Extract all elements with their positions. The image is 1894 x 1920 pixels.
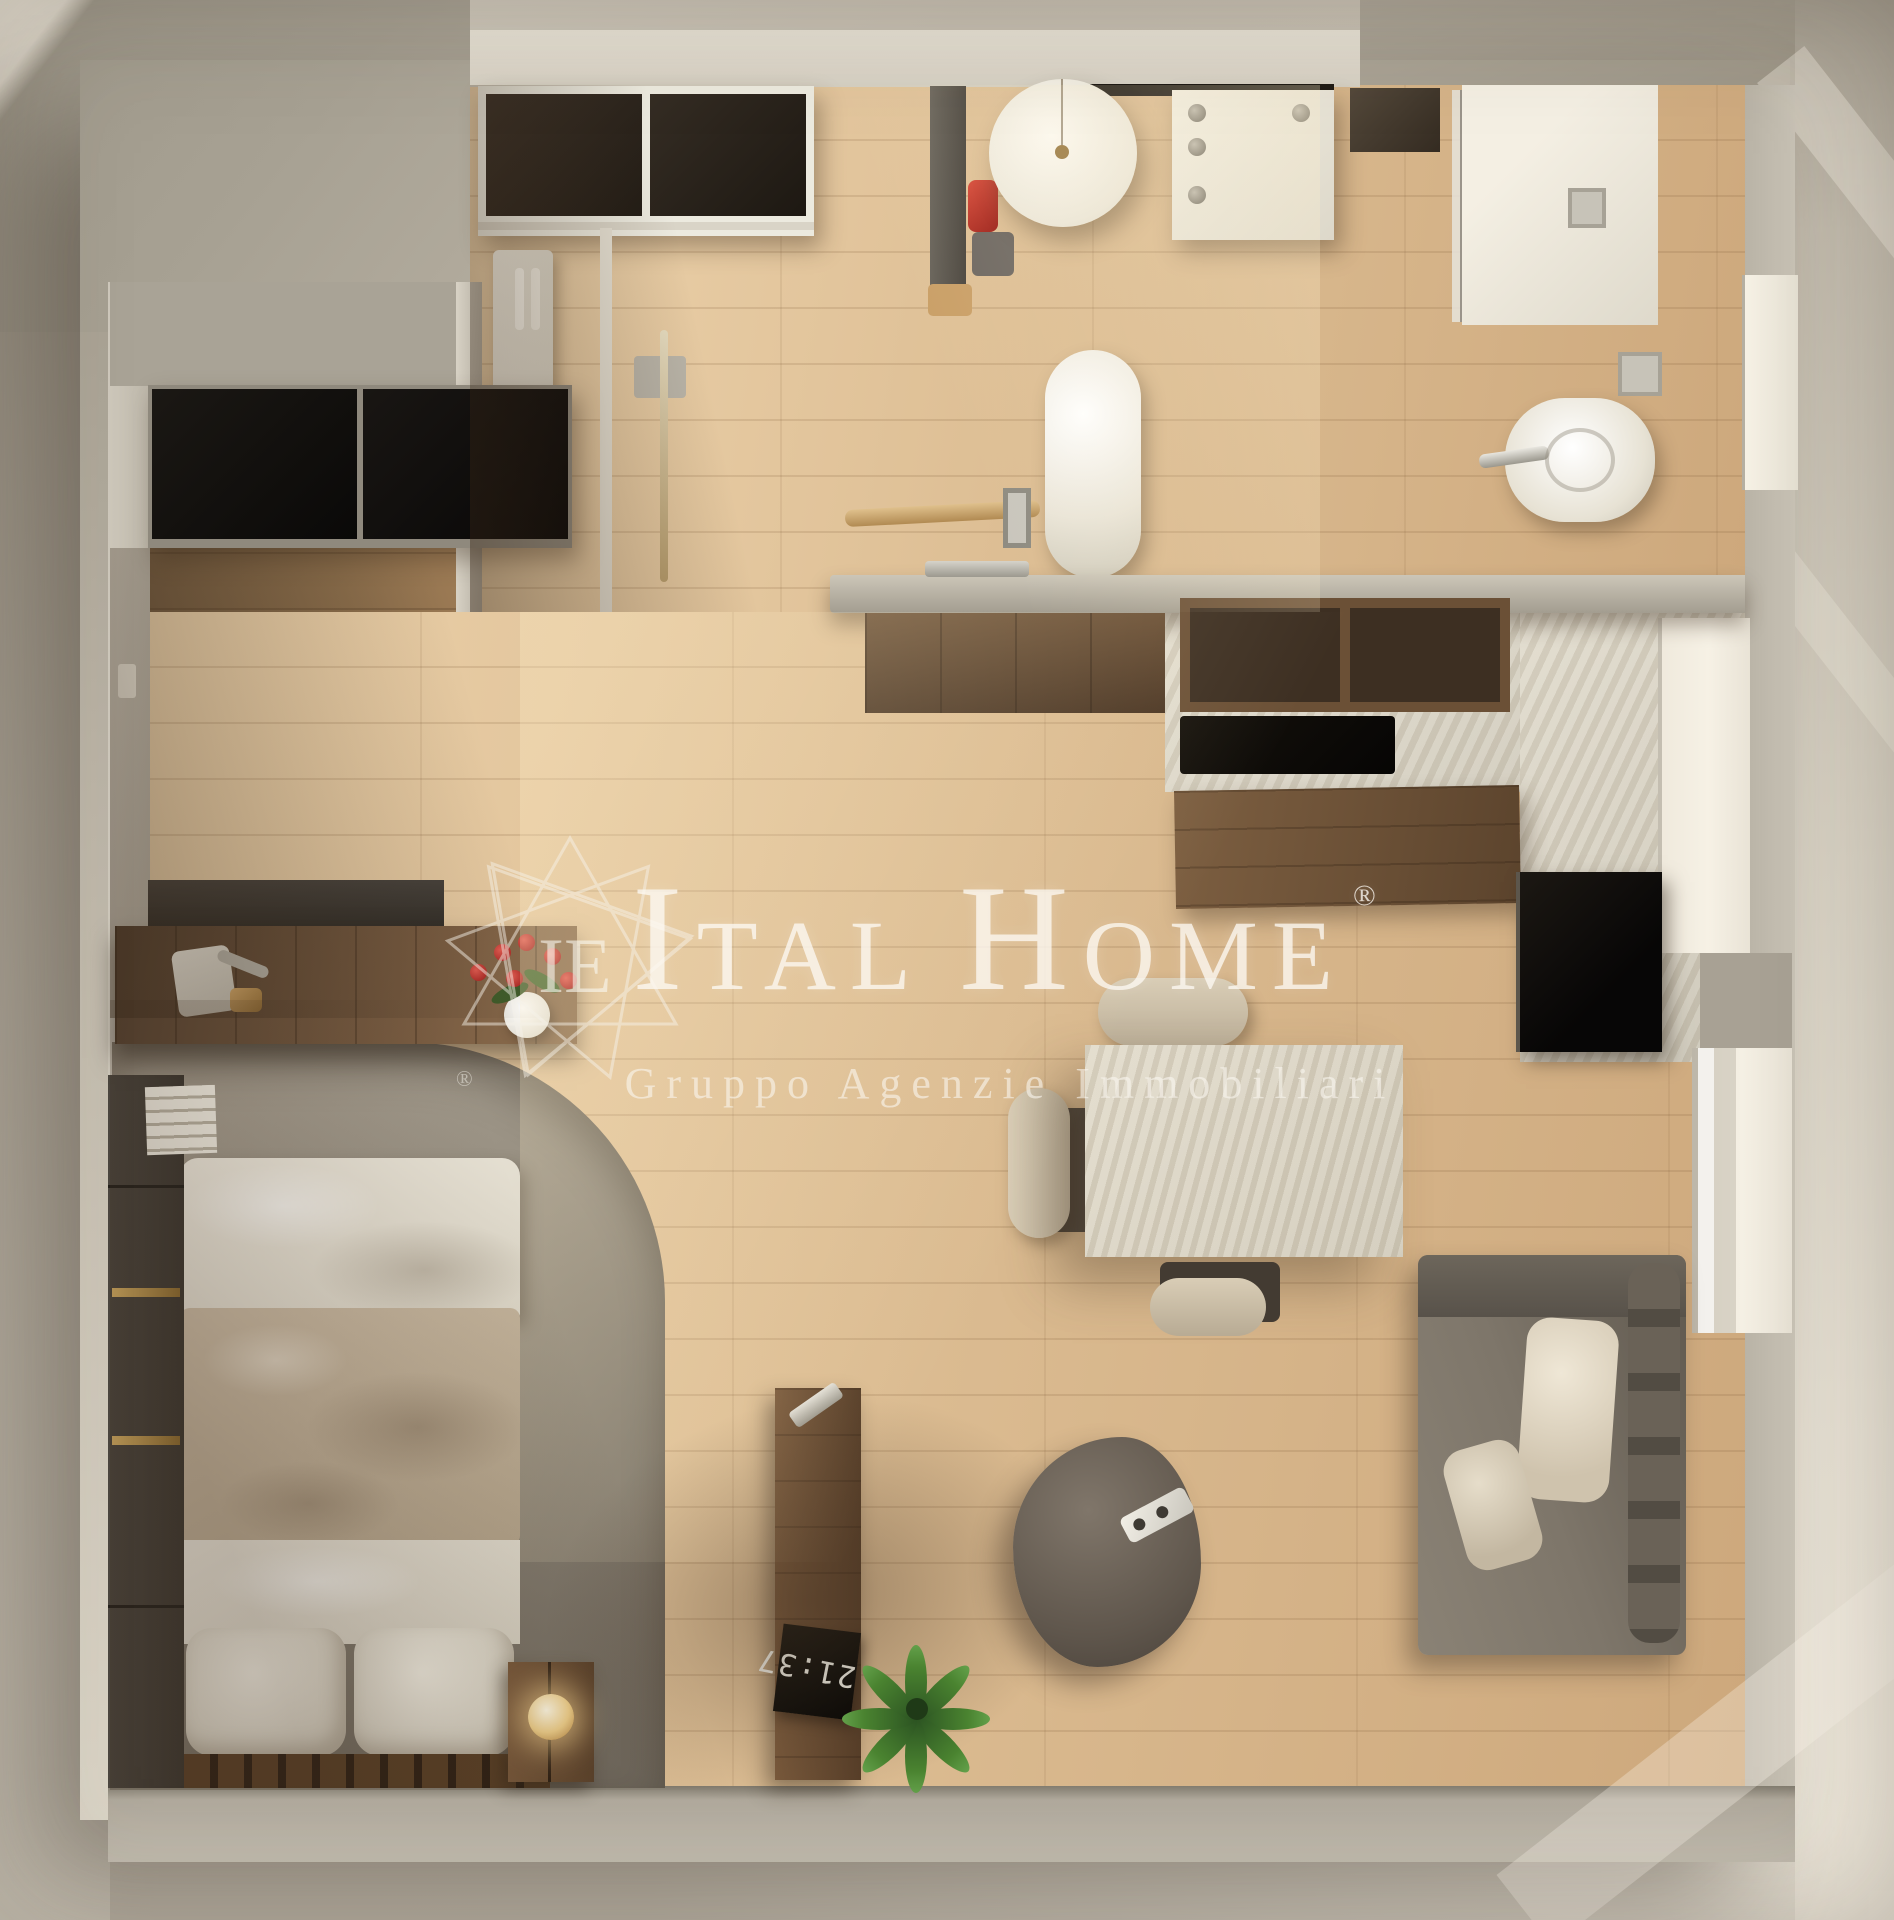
plant-center bbox=[906, 1698, 928, 1720]
bed-blanket-beige bbox=[180, 1308, 520, 1546]
fire-extinguisher bbox=[968, 180, 998, 232]
tv bbox=[1520, 872, 1662, 1052]
flower-bloom bbox=[506, 970, 523, 987]
window bbox=[1658, 618, 1750, 953]
wardrobe-door-panel bbox=[650, 94, 806, 216]
shower-control bbox=[1568, 188, 1606, 228]
stove-knob bbox=[1188, 186, 1206, 204]
pillow bbox=[186, 1628, 346, 1756]
peninsula-panel bbox=[1174, 785, 1521, 909]
wall-bottom bbox=[108, 1786, 1795, 1862]
closet-strip bbox=[108, 1075, 184, 1788]
stove-knob bbox=[1188, 138, 1206, 156]
window bbox=[1692, 1048, 1792, 1333]
sofa bbox=[1418, 1255, 1686, 1655]
nightstand bbox=[508, 1662, 594, 1782]
bed bbox=[180, 1158, 520, 1788]
desk-shelf bbox=[148, 880, 444, 928]
dining-chair bbox=[1098, 978, 1248, 1046]
dining-table bbox=[1085, 1045, 1403, 1257]
wall-shelf bbox=[1180, 598, 1510, 712]
kitchen-base-cabinets bbox=[865, 613, 1165, 713]
bidet-basin bbox=[1545, 428, 1615, 492]
wall-top bbox=[470, 30, 1360, 87]
long-door-handle bbox=[660, 330, 668, 582]
door-handle bbox=[515, 268, 524, 330]
bidet bbox=[1505, 398, 1655, 522]
bathroom-cabinet bbox=[1350, 88, 1440, 152]
pillow bbox=[354, 1628, 514, 1756]
coat-rack-base bbox=[928, 284, 972, 316]
sofa-back-cushions bbox=[1628, 1263, 1680, 1643]
cooktop bbox=[1180, 716, 1395, 774]
wall-left-room bbox=[110, 282, 470, 386]
flower-bloom bbox=[560, 972, 577, 989]
closet-seam bbox=[108, 1605, 184, 1608]
wall-switch bbox=[118, 664, 136, 698]
flower-bloom bbox=[494, 944, 511, 961]
coat-rack bbox=[930, 86, 966, 286]
desk-accessory bbox=[230, 988, 262, 1012]
flower-bloom bbox=[470, 964, 487, 981]
flower-bloom bbox=[518, 934, 535, 951]
sofa-cushion bbox=[1516, 1316, 1620, 1504]
wardrobe-door-panel bbox=[486, 94, 642, 216]
remote-control bbox=[1119, 1486, 1196, 1545]
brass-handle bbox=[112, 1436, 180, 1445]
window bbox=[1742, 275, 1798, 490]
fire-extinguisher-bracket bbox=[972, 232, 1014, 276]
stove-knob bbox=[1188, 104, 1206, 122]
bed-duvet-white bbox=[180, 1158, 520, 1318]
counter-tray bbox=[925, 561, 1029, 577]
wardrobe-door-panel bbox=[363, 389, 568, 539]
wall-pier bbox=[1700, 953, 1792, 1048]
background-right bbox=[1795, 0, 1894, 1920]
pendant-cable bbox=[1061, 79, 1063, 145]
books bbox=[145, 1085, 217, 1155]
entry-wardrobe bbox=[478, 86, 814, 236]
shower-glass-door bbox=[1452, 90, 1460, 322]
remote-button bbox=[1154, 1504, 1170, 1520]
plant bbox=[852, 1652, 992, 1786]
wardrobe-door-panel bbox=[152, 389, 357, 539]
shower bbox=[1462, 85, 1658, 325]
flower-vase bbox=[460, 930, 590, 1050]
pendant-lamp-hub bbox=[1055, 145, 1069, 159]
apartment-render: 21:37 IE ® ITA bbox=[0, 0, 1894, 1920]
stove-knob bbox=[1292, 104, 1310, 122]
dining-chair bbox=[1008, 1088, 1070, 1238]
dining-chair bbox=[1150, 1278, 1266, 1336]
sphere-lamp bbox=[528, 1694, 574, 1740]
closet-seam bbox=[108, 1185, 184, 1188]
clock-display: 21:37 bbox=[776, 1645, 859, 1694]
shelf-divider bbox=[1340, 598, 1350, 712]
bed-headboard-slats bbox=[150, 1754, 550, 1788]
coffee-table bbox=[1013, 1437, 1201, 1667]
door-handle bbox=[531, 268, 540, 330]
black-wardrobe bbox=[148, 385, 572, 548]
pendant-lamp bbox=[989, 79, 1137, 227]
wall-switch bbox=[1003, 488, 1031, 548]
remote-button bbox=[1131, 1516, 1147, 1532]
wardrobe-track bbox=[478, 222, 814, 230]
wall-switch bbox=[1618, 352, 1662, 396]
kitchen-appliance-unit bbox=[1172, 90, 1334, 240]
pivot-door-edge bbox=[600, 228, 612, 612]
digital-clock: 21:37 bbox=[773, 1624, 861, 1721]
brass-handle bbox=[112, 1288, 180, 1297]
flower-bloom bbox=[544, 948, 561, 965]
toilet bbox=[1045, 350, 1141, 578]
